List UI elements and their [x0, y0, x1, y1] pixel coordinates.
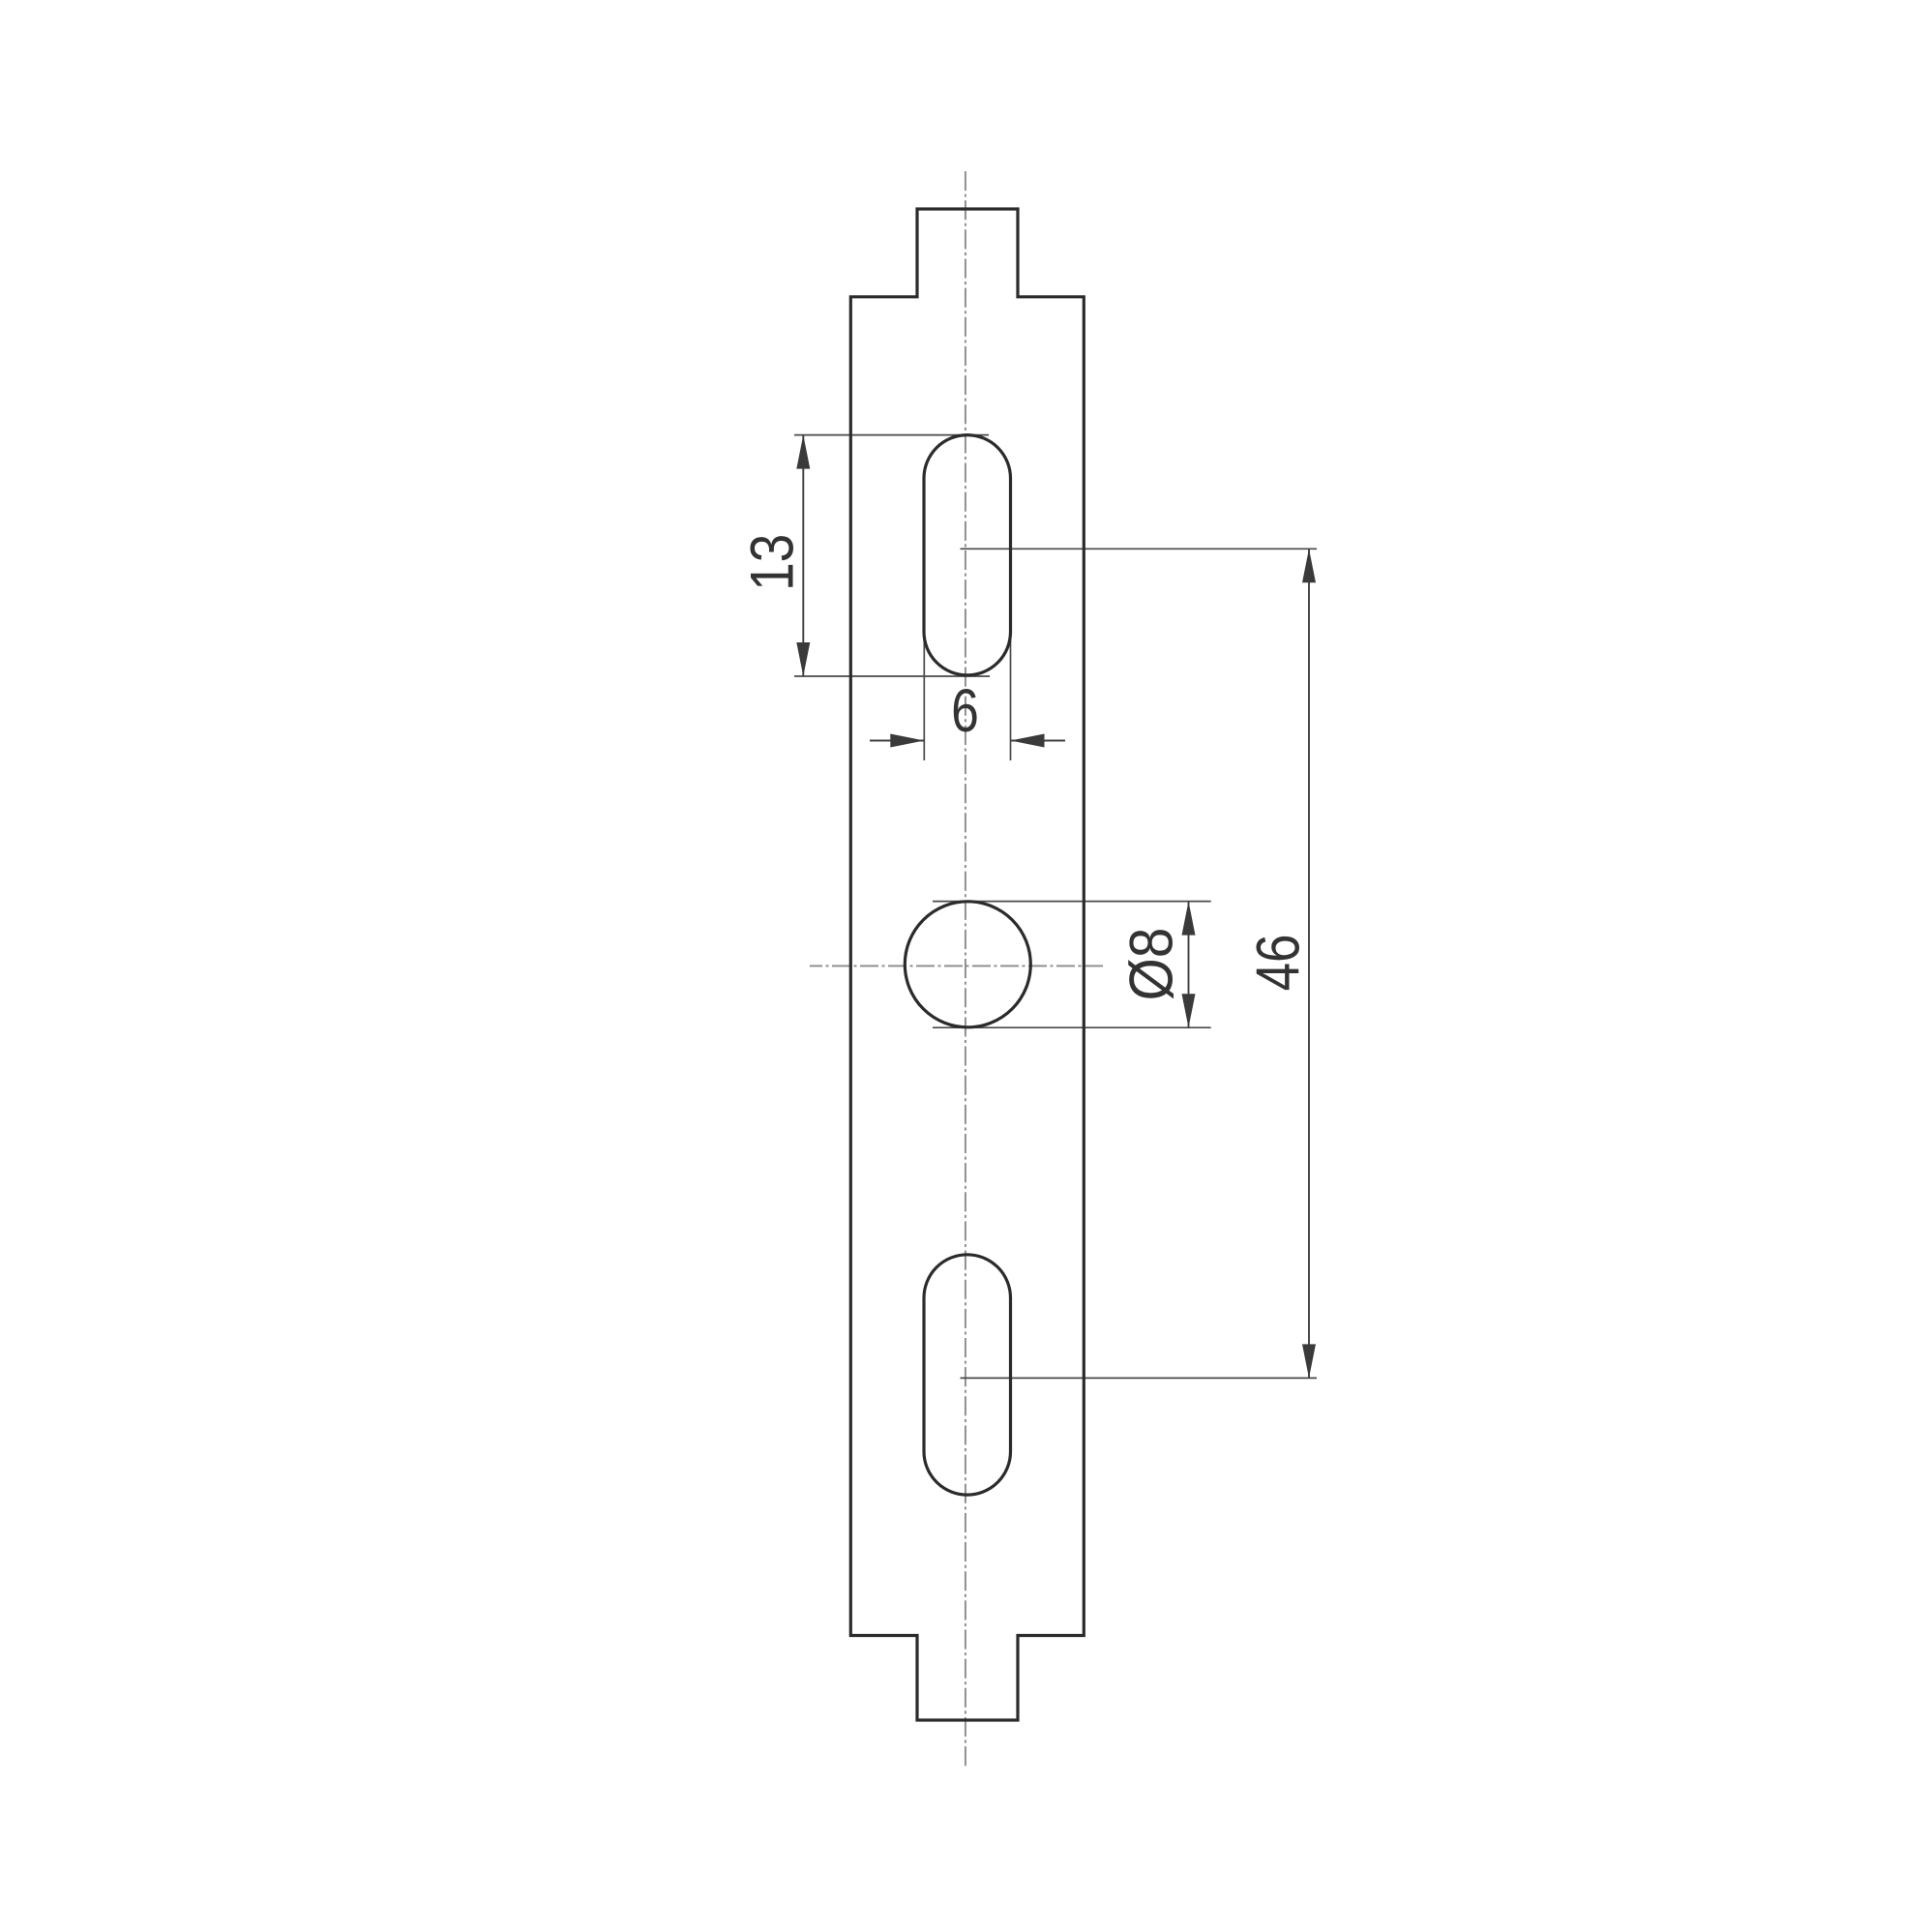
svg-text:46: 46 — [1244, 935, 1312, 992]
svg-text:Ø8: Ø8 — [1117, 928, 1185, 1001]
svg-text:13: 13 — [738, 534, 806, 591]
svg-text:6: 6 — [951, 677, 979, 745]
